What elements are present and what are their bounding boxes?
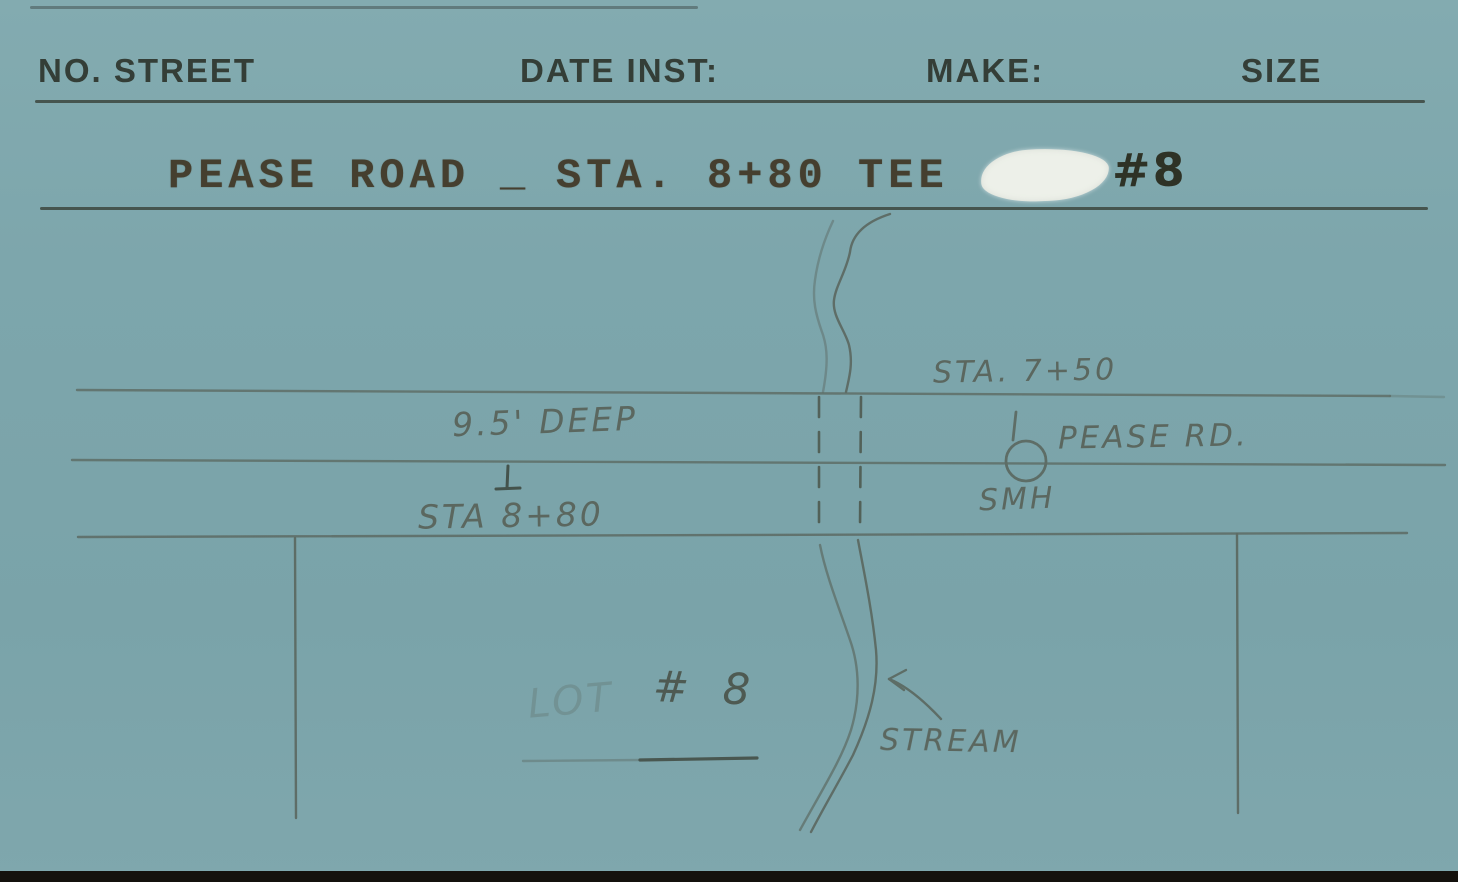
- label-stream: STREAM: [880, 723, 1022, 760]
- stream-lower-right-line: [811, 540, 877, 832]
- stream-lower-left-line: [800, 545, 858, 830]
- lot-line-left: [295, 538, 296, 818]
- sta-750-tick: [1013, 412, 1016, 440]
- lot-line-right: [1237, 534, 1238, 813]
- label-depth: 9.5' DEEP: [451, 399, 638, 444]
- scanned-index-card: NO. STREET DATE INST: MAKE: SIZE PEASE R…: [0, 0, 1458, 882]
- sta-880-tick: [496, 466, 520, 489]
- stream-upper-right-line: [834, 214, 890, 392]
- lot-underline-right: [640, 758, 757, 760]
- label-sta-880: STA 8+80: [418, 494, 604, 536]
- road-line-top: [77, 390, 1390, 396]
- label-lot-erased: LOT: [526, 674, 616, 727]
- lot-underline-left: [523, 760, 640, 761]
- label-lot-number: # 8: [652, 662, 761, 716]
- label-smh: SMH: [978, 481, 1056, 519]
- road-line-bottom: [78, 533, 1407, 537]
- road-line-center: [72, 460, 1445, 465]
- stream-upper-left-line: [814, 221, 833, 392]
- culvert-dashed-lines: [819, 397, 861, 533]
- manhole-circle: [1006, 441, 1046, 481]
- label-sta-750: STA. 7+50: [933, 352, 1118, 390]
- label-pease-rd: PEASE RD.: [1058, 417, 1249, 456]
